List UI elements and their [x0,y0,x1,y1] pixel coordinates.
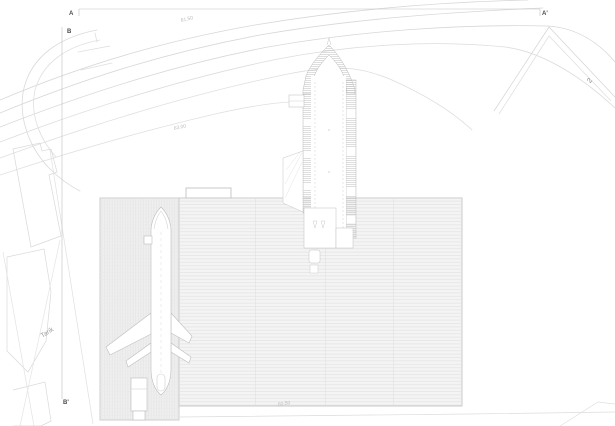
site-plan-drawing [0,0,615,426]
section-marker-b-prime: B' [63,400,69,406]
section-marker-a: A [69,11,73,17]
section-marker-b: B [67,29,71,35]
site-plan-canvas: A A' B B' 2 Tarik 81.50 63.00 60.50 [0,0,615,426]
section-marker-a-prime: A' [542,11,548,17]
